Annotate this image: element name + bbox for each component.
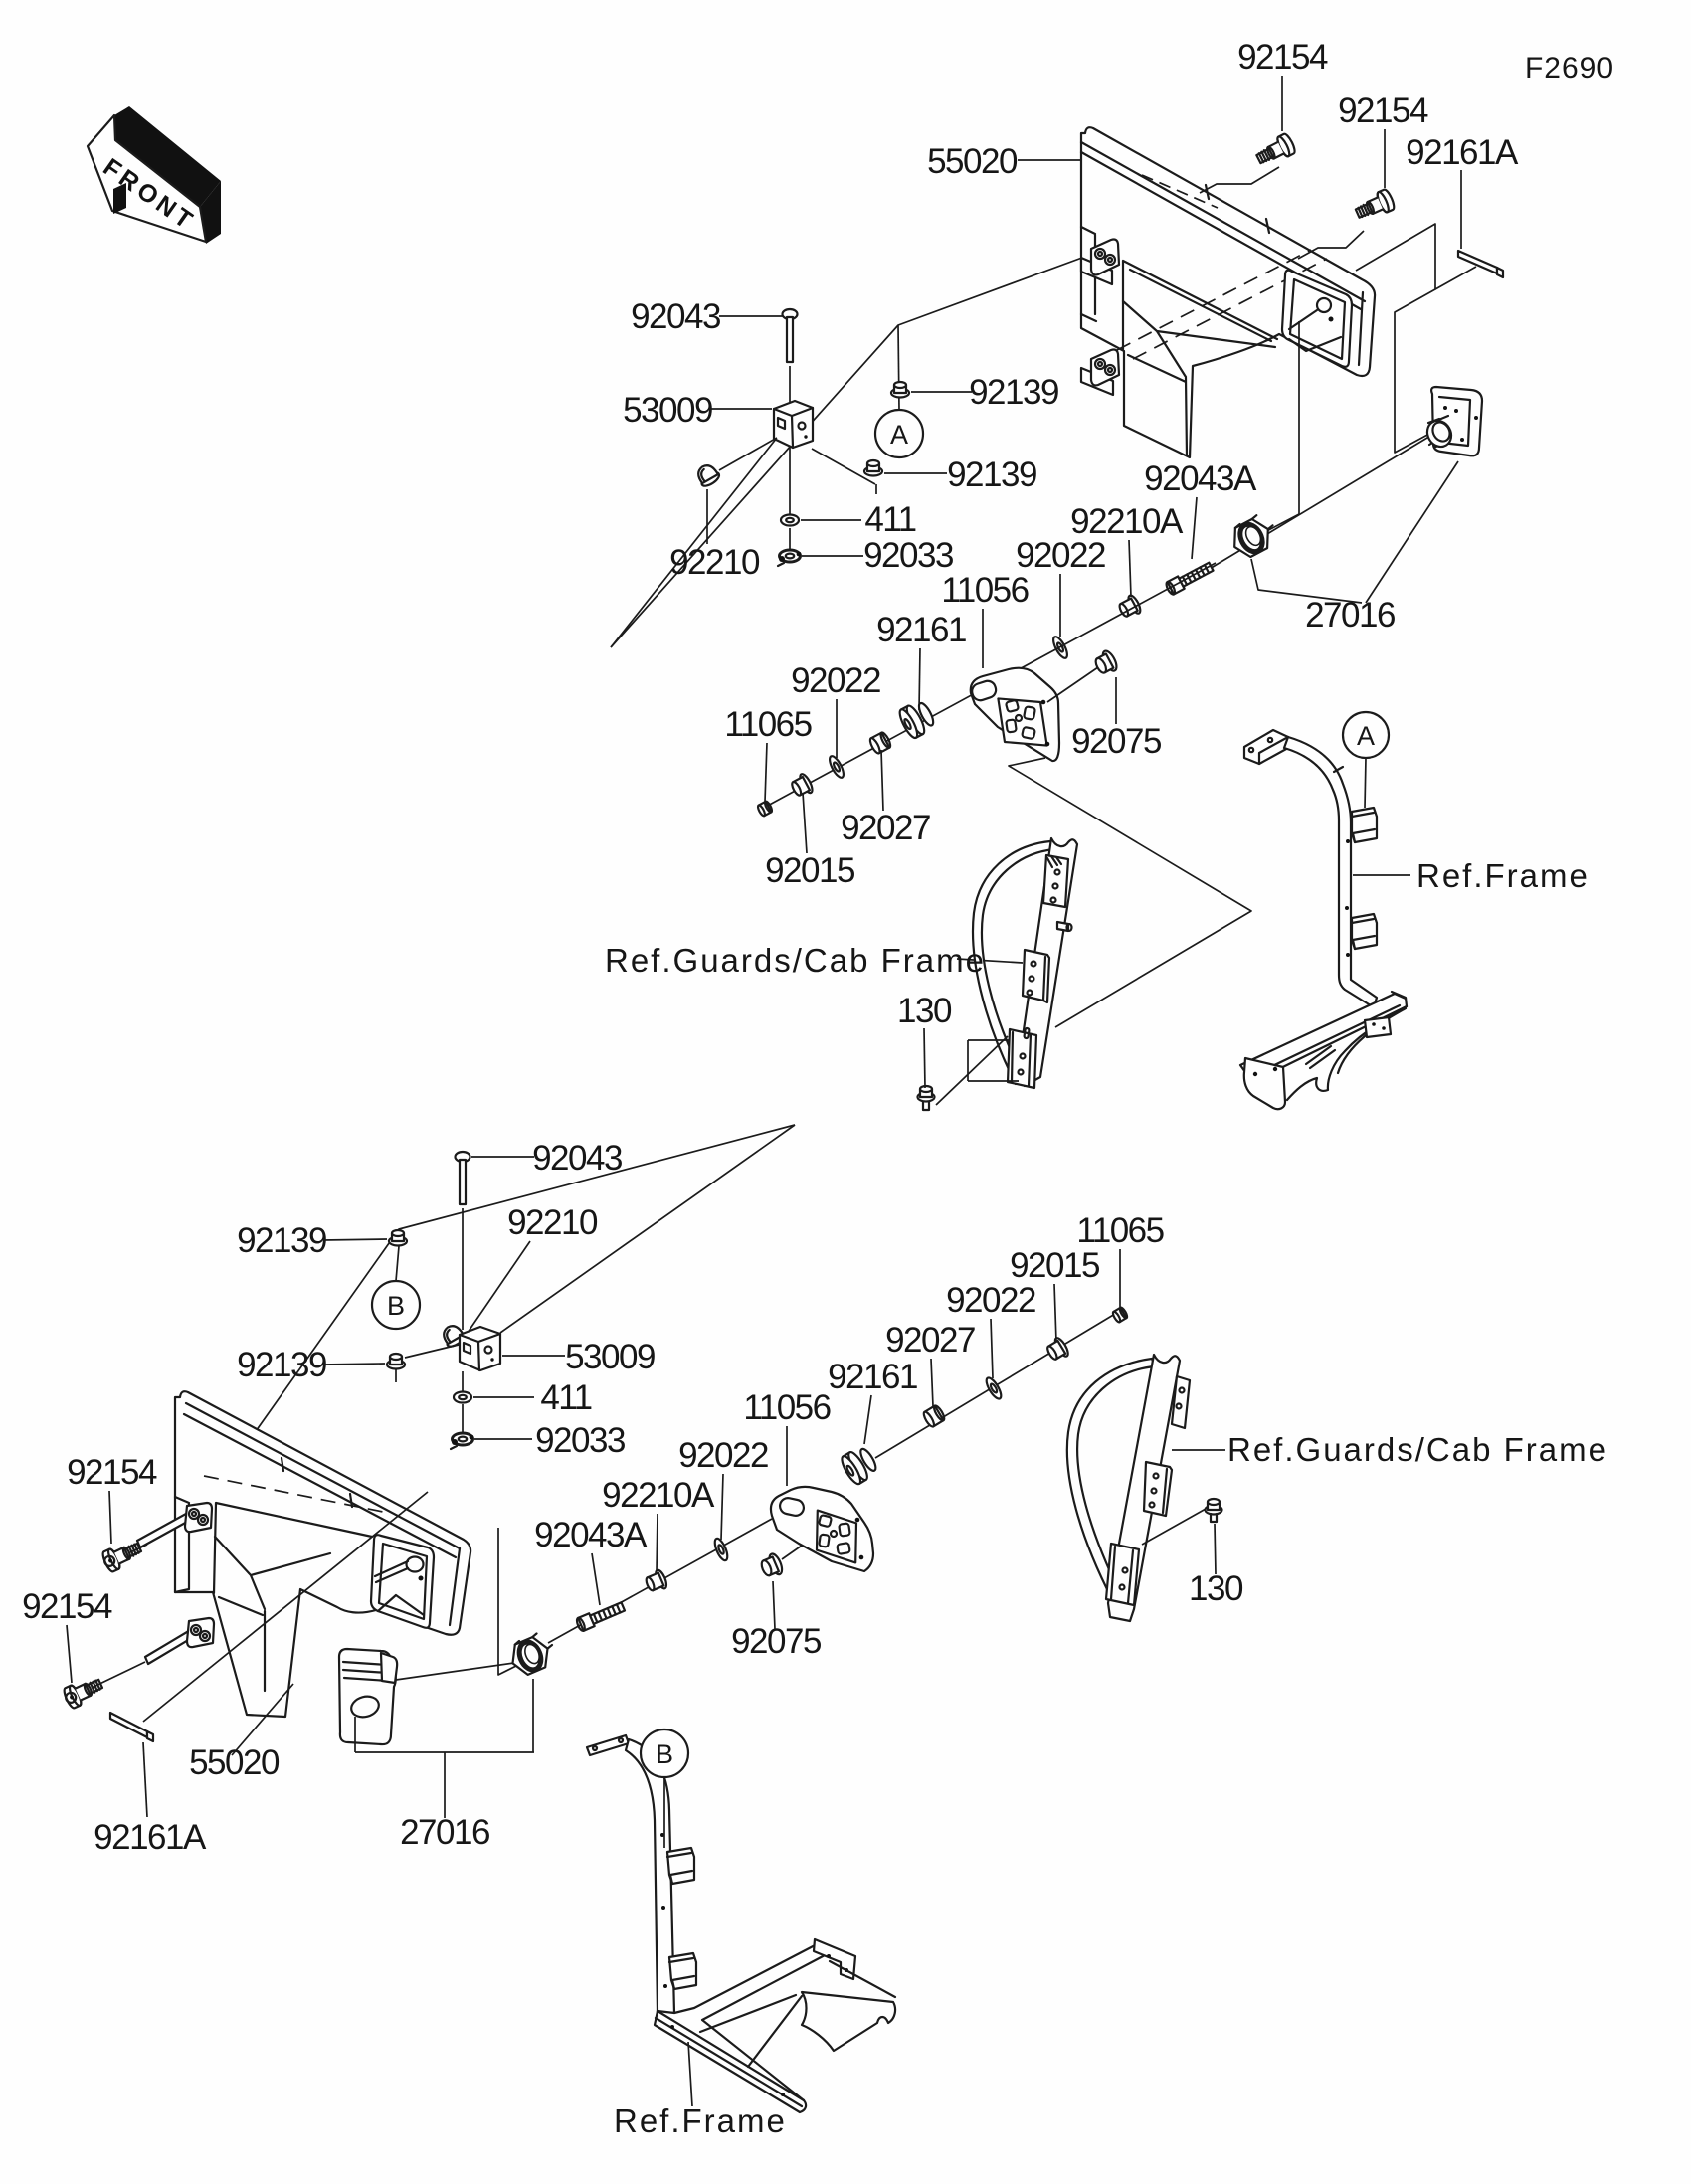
svg-text:53009: 53009 — [565, 1338, 655, 1376]
svg-text:92139: 92139 — [237, 1346, 326, 1384]
svg-text:92027: 92027 — [885, 1321, 975, 1360]
svg-text:92022: 92022 — [1016, 536, 1105, 575]
svg-text:92154: 92154 — [1338, 91, 1428, 130]
svg-text:92043: 92043 — [532, 1139, 622, 1178]
svg-text:92022: 92022 — [791, 661, 880, 700]
svg-text:92161: 92161 — [828, 1358, 917, 1396]
svg-text:411: 411 — [864, 500, 915, 539]
svg-text:55020: 55020 — [927, 142, 1018, 181]
svg-text:92210: 92210 — [507, 1203, 598, 1242]
svg-text:F2690: F2690 — [1525, 52, 1614, 85]
svg-text:92075: 92075 — [731, 1622, 821, 1661]
svg-text:92210A: 92210A — [602, 1476, 715, 1515]
svg-text:92210: 92210 — [669, 543, 760, 582]
svg-text:11065: 11065 — [1076, 1211, 1163, 1250]
svg-text:92154: 92154 — [67, 1453, 157, 1492]
svg-text:A: A — [1357, 721, 1375, 751]
svg-text:130: 130 — [897, 992, 952, 1030]
svg-text:B: B — [656, 1739, 673, 1769]
svg-text:B: B — [387, 1291, 405, 1321]
svg-text:92033: 92033 — [863, 536, 953, 575]
svg-text:92161: 92161 — [876, 611, 966, 649]
svg-text:92043A: 92043A — [534, 1516, 648, 1554]
svg-text:130: 130 — [1189, 1569, 1243, 1608]
svg-text:92015: 92015 — [1010, 1246, 1099, 1285]
svg-text:92027: 92027 — [841, 809, 930, 847]
svg-text:92043: 92043 — [631, 297, 720, 336]
svg-text:A: A — [890, 420, 908, 450]
svg-text:11056: 11056 — [941, 571, 1028, 610]
svg-text:92139: 92139 — [969, 373, 1058, 412]
svg-text:92075: 92075 — [1071, 722, 1161, 761]
svg-text:92154: 92154 — [22, 1587, 112, 1626]
svg-text:27016: 27016 — [400, 1813, 489, 1852]
svg-text:92033: 92033 — [535, 1421, 625, 1460]
svg-text:Ref.Frame: Ref.Frame — [614, 2102, 787, 2139]
svg-text:92161A: 92161A — [1406, 133, 1519, 172]
svg-text:92139: 92139 — [947, 455, 1036, 494]
svg-text:Ref.Guards/Cab Frame: Ref.Guards/Cab Frame — [1227, 1431, 1608, 1468]
svg-text:Ref.Frame: Ref.Frame — [1416, 857, 1590, 894]
svg-text:11065: 11065 — [724, 705, 811, 744]
svg-text:53009: 53009 — [623, 391, 712, 430]
svg-text:411: 411 — [540, 1378, 591, 1417]
svg-text:92022: 92022 — [946, 1281, 1035, 1320]
svg-text:Ref.Guards/Cab Frame: Ref.Guards/Cab Frame — [605, 942, 986, 979]
svg-text:11056: 11056 — [743, 1388, 830, 1427]
svg-text:92139: 92139 — [237, 1221, 326, 1260]
svg-text:92043A: 92043A — [1144, 459, 1257, 498]
svg-text:55020: 55020 — [189, 1743, 280, 1782]
svg-text:92154: 92154 — [1237, 38, 1328, 77]
svg-text:92015: 92015 — [765, 851, 854, 890]
svg-text:92161A: 92161A — [94, 1818, 207, 1857]
svg-text:92022: 92022 — [678, 1436, 768, 1475]
